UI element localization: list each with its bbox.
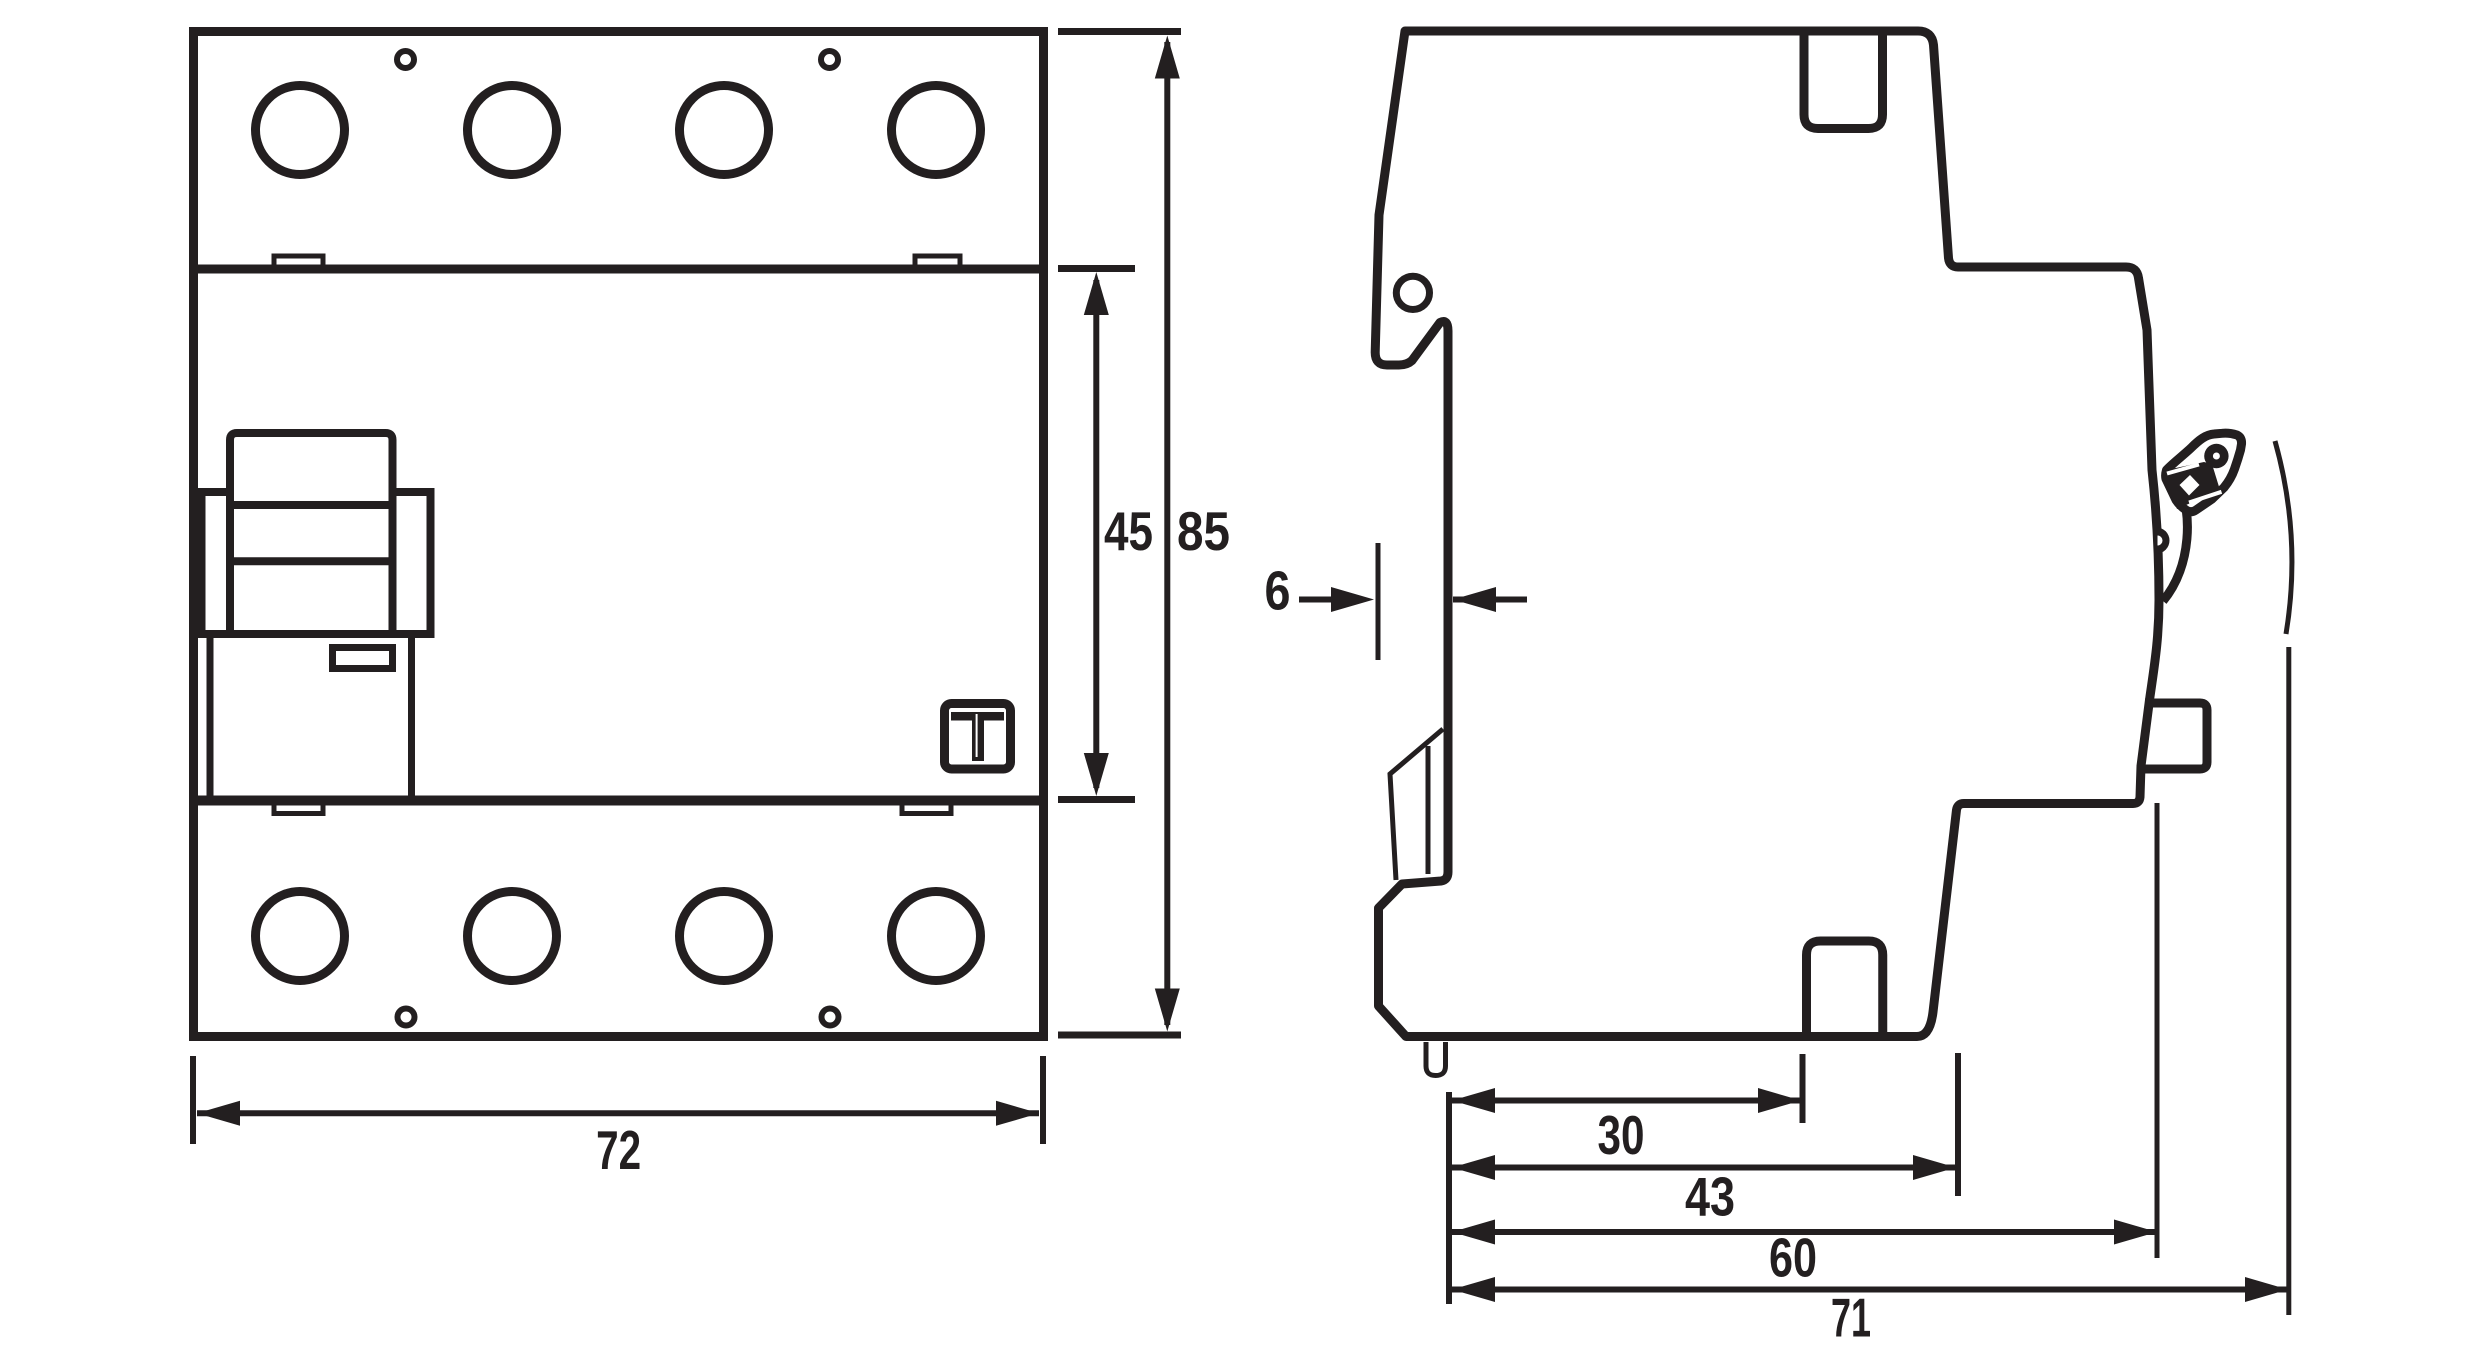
svg-text:60: 60 xyxy=(1769,1227,1817,1289)
svg-text:6: 6 xyxy=(1265,560,1291,622)
svg-text:30: 30 xyxy=(1598,1104,1645,1166)
svg-text:72: 72 xyxy=(596,1119,641,1181)
svg-text:43: 43 xyxy=(1685,1166,1735,1228)
svg-text:45: 45 xyxy=(1104,500,1153,562)
svg-text:85: 85 xyxy=(1177,500,1230,562)
svg-text:71: 71 xyxy=(1831,1287,1871,1349)
